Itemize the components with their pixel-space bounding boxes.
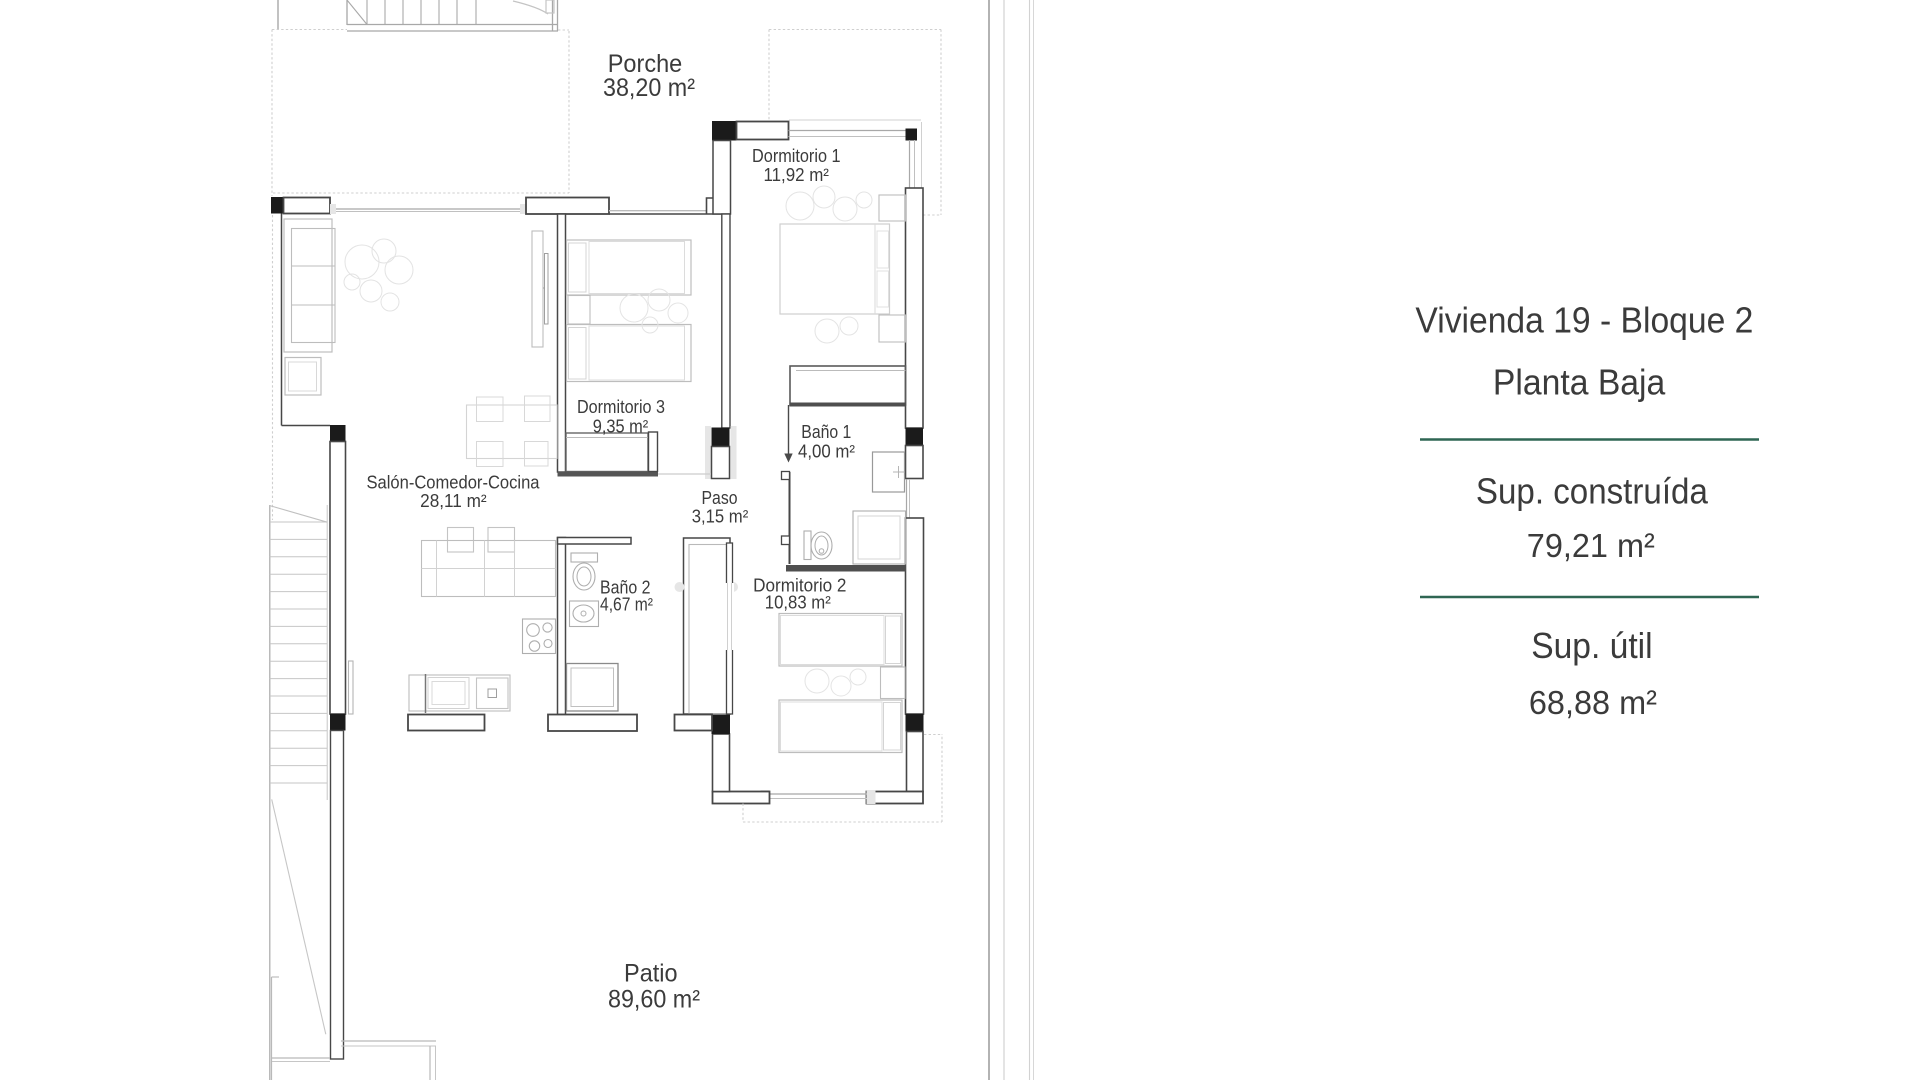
- svg-text:11,92 m²: 11,92 m²: [763, 165, 829, 185]
- svg-text:4,67 m²: 4,67 m²: [600, 595, 653, 615]
- svg-text:28,11 m²: 28,11 m²: [420, 491, 487, 511]
- svg-text:Dormitorio 1: Dormitorio 1: [752, 146, 841, 166]
- svg-text:3,15 m²: 3,15 m²: [692, 507, 749, 527]
- svg-text:10,83 m²: 10,83 m²: [765, 593, 831, 613]
- svg-text:Patio: Patio: [624, 960, 678, 988]
- svg-text:Dormitorio 3: Dormitorio 3: [577, 397, 665, 417]
- svg-text:Planta Baja: Planta Baja: [1493, 362, 1666, 403]
- svg-text:Vivienda 19 - Bloque 2: Vivienda 19 - Bloque 2: [1415, 300, 1753, 341]
- svg-text:Paso: Paso: [702, 488, 738, 508]
- svg-text:9,35 m²: 9,35 m²: [593, 417, 649, 437]
- svg-text:38,20 m²: 38,20 m²: [603, 74, 695, 102]
- svg-text:79,21 m²: 79,21 m²: [1527, 528, 1655, 565]
- svg-text:Baño 1: Baño 1: [801, 422, 851, 442]
- svg-text:Sup. construída: Sup. construída: [1476, 471, 1709, 512]
- svg-text:Salón-Comedor-Cocina: Salón-Comedor-Cocina: [367, 473, 541, 493]
- svg-text:4,00 m²: 4,00 m²: [798, 442, 855, 462]
- svg-text:68,88 m²: 68,88 m²: [1529, 685, 1657, 722]
- svg-text:89,60 m²: 89,60 m²: [608, 986, 700, 1014]
- svg-text:Sup. útil: Sup. útil: [1531, 625, 1652, 666]
